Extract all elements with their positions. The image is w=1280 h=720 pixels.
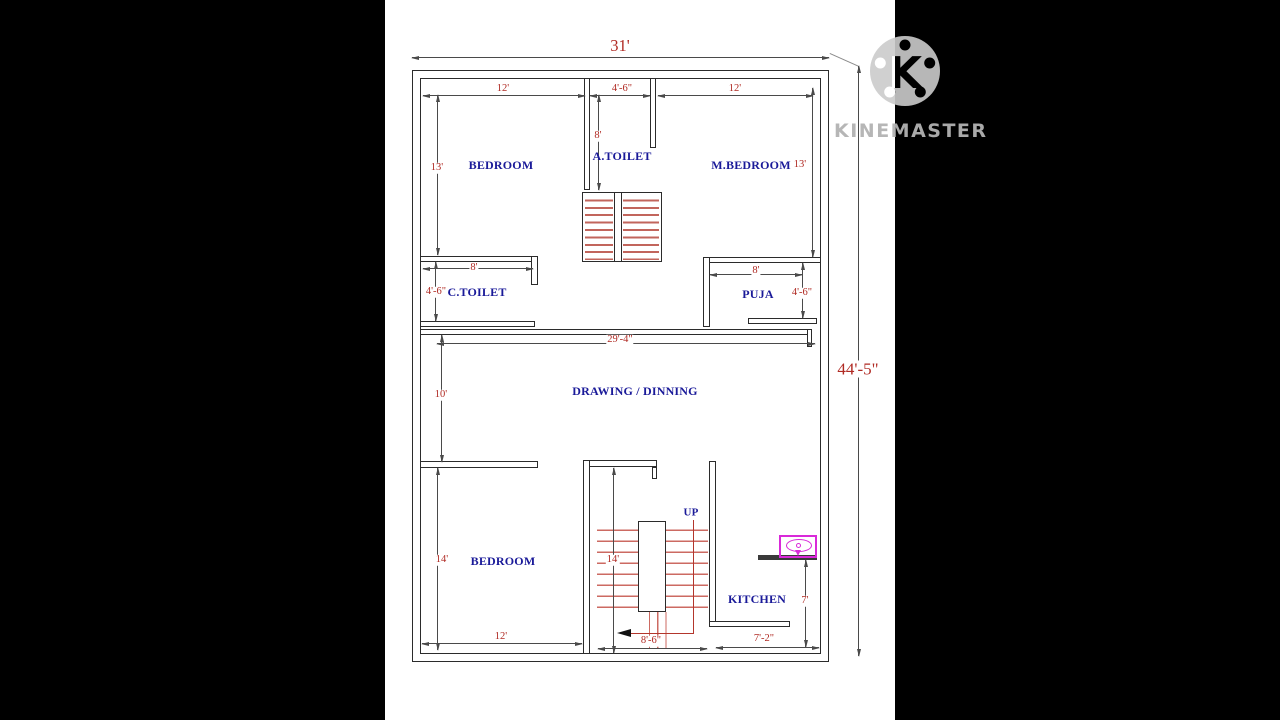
dimline-kitchen-w — [716, 647, 819, 648]
room-label-bedroom-top: BEDROOM — [469, 159, 534, 171]
stair-path-vertical — [693, 520, 694, 634]
sink-drain-icon — [796, 543, 801, 548]
wall-puja-left — [703, 257, 710, 327]
wall-stairs-left — [583, 460, 590, 654]
room-label-atoilet: A.TOILET — [592, 150, 651, 162]
dim-puja-w: 8' — [751, 266, 760, 277]
dimline-bedroom-bottom-w — [422, 643, 582, 644]
wall-stairs-top — [583, 460, 657, 467]
room-label-ctoilet: C.TOILET — [447, 286, 506, 298]
dimline-atoilet-h — [598, 95, 599, 190]
room-label-bedroom-bottom: BEDROOM — [471, 555, 536, 567]
dim-atoilet-w: 4'-6" — [611, 84, 633, 95]
dim-bedroom-top-w: 12' — [496, 84, 510, 95]
floor-plan-sheet: 31' 44'-5" 12' 4'-6" 12' 8' 13' 13' 8' 4… — [385, 0, 895, 720]
room-label-mbedroom: M.BEDROOM — [711, 159, 790, 171]
dim-kitchen-w: 7'-2" — [753, 634, 775, 645]
stair-box-upper — [582, 192, 662, 262]
wall-kitchen-bottom — [709, 621, 790, 627]
dimline-mbedroom-h — [812, 88, 813, 257]
dim-drawing-h: 10' — [434, 390, 448, 401]
dim-atoilet-h: 8' — [593, 131, 602, 142]
room-label-puja: PUJA — [742, 288, 773, 300]
dim-kitchen-h: 7' — [800, 596, 809, 607]
dimline-leader-tick — [830, 53, 859, 67]
dimline-stairs-w — [598, 648, 707, 649]
dim-bedroom-bottom-w: 12' — [494, 632, 508, 643]
dim-mbedroom-w: 12' — [728, 84, 742, 95]
dim-puja-h: 4'-6" — [791, 288, 813, 299]
dim-stairs-h: 14' — [606, 555, 620, 566]
dimline-overall-width — [412, 57, 829, 58]
dim-ctoilet-w: 8' — [469, 263, 478, 274]
kinemaster-logo-icon: K — [862, 30, 948, 116]
wall-atoilet-right — [650, 78, 656, 148]
dim-mbedroom-h: 13' — [793, 160, 807, 171]
wall-ctoilet-top — [420, 256, 538, 262]
stair-landing — [638, 521, 666, 612]
video-frame: 31' 44'-5" 12' 4'-6" 12' 8' 13' 13' 8' 4… — [0, 0, 1280, 720]
stair-divider-upper — [614, 192, 622, 262]
overall-height-label: 44'-5" — [836, 361, 879, 378]
dim-drawing-w: 29'-4" — [606, 335, 633, 346]
overall-width-label: 31' — [609, 38, 630, 55]
dimline-mbedroom-w — [658, 95, 813, 96]
room-label-drawing-dining: DRAWING / DINNING — [572, 385, 697, 397]
dimline-bedroom-top-h — [437, 95, 438, 255]
dim-bedroom-bottom-h: 14' — [435, 555, 449, 566]
dim-ctoilet-h: 4'-6" — [425, 287, 447, 298]
kinemaster-watermark-text: KINEMASTER — [834, 120, 964, 142]
dimline-bedroom-top-w — [423, 95, 585, 96]
wall-puja-bottom — [748, 318, 817, 324]
sink-faucet-arrow-icon — [795, 550, 801, 556]
dim-bedroom-top-h: 13' — [430, 163, 444, 174]
stairs-up-label: UP — [683, 508, 698, 519]
wall-kitchen-left — [709, 461, 716, 627]
room-label-kitchen: KITCHEN — [728, 593, 786, 605]
stair-direction-arrow — [617, 629, 631, 637]
wall-stairs-jamb — [652, 467, 657, 479]
sink-fixture — [779, 535, 817, 558]
dim-stairs-w: 8'-6" — [640, 636, 662, 647]
